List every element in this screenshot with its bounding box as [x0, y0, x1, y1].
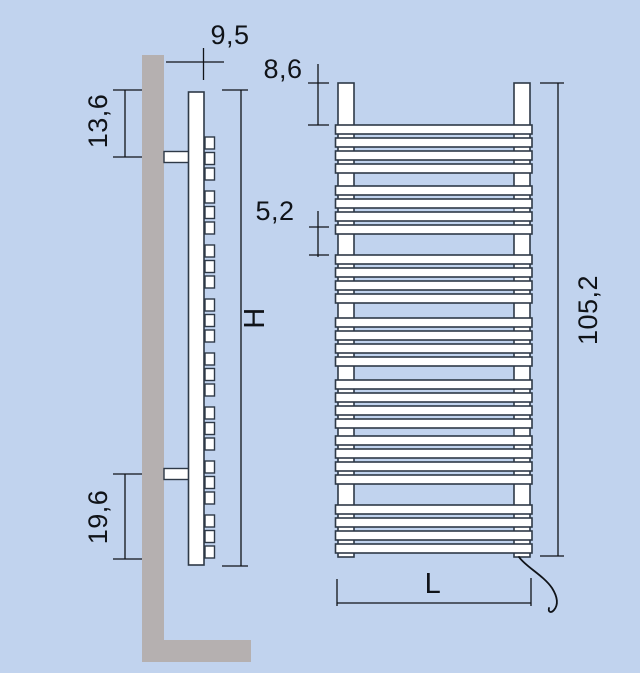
side-tube-section: [205, 477, 215, 489]
side-tube-section: [205, 515, 215, 527]
side-view-tube-sections: [205, 137, 215, 558]
lower-wall-bracket: [164, 469, 189, 480]
front-view-towel-bars: [336, 125, 533, 553]
side-tube-section: [205, 438, 215, 450]
front-towel-bar: [336, 436, 533, 445]
side-view-collector: [189, 92, 205, 565]
front-towel-bar: [336, 151, 533, 160]
front-towel-bar: [336, 462, 533, 471]
label-tube-group-gap: 5,2: [255, 196, 294, 226]
front-towel-bar: [336, 344, 533, 353]
front-towel-bar: [336, 212, 533, 221]
front-towel-bar: [336, 544, 533, 553]
front-towel-bar: [336, 331, 533, 340]
dim-line-overall-height: [540, 83, 564, 556]
label-lower-bracket-offset: 19,6: [83, 490, 113, 545]
front-towel-bar: [336, 419, 533, 428]
label-top-to-first-tube: 8,6: [263, 54, 302, 84]
label-upper-bracket-offset: 13,6: [83, 94, 113, 149]
front-towel-bar: [336, 318, 533, 327]
side-tube-section: [205, 222, 215, 234]
front-towel-bar: [336, 164, 533, 173]
power-cable: [519, 557, 557, 612]
side-tube-section: [205, 261, 215, 273]
dim-line-wall-distance: [166, 48, 224, 80]
front-towel-bar: [336, 518, 533, 527]
side-tube-section: [205, 168, 215, 180]
front-towel-bar: [336, 186, 533, 195]
side-tube-section: [205, 461, 215, 473]
side-tube-section: [205, 315, 215, 327]
side-view: [164, 92, 215, 565]
front-towel-bar: [336, 138, 533, 147]
front-towel-bar: [336, 449, 533, 458]
radiator-technical-drawing: 9,5 13,6 8,6 5,2 H 19,6 105,2 L: [0, 0, 640, 673]
side-tube-section: [205, 299, 215, 311]
front-view: [336, 83, 557, 612]
front-towel-bar: [336, 393, 533, 402]
side-tube-section: [205, 407, 215, 419]
front-towel-bar: [336, 357, 533, 366]
front-towel-bar: [336, 505, 533, 514]
front-towel-bar: [336, 268, 533, 277]
side-tube-section: [205, 330, 215, 342]
front-towel-bar: [336, 225, 533, 234]
side-tube-section: [205, 137, 215, 149]
side-tube-section: [205, 245, 215, 257]
side-tube-section: [205, 492, 215, 504]
front-towel-bar: [336, 199, 533, 208]
front-towel-bar: [336, 125, 533, 134]
dim-line-tube-group-gap: [309, 211, 329, 257]
front-towel-bar: [336, 531, 533, 540]
dim-line-upper-bracket: [113, 90, 142, 157]
label-overall-height: 105,2: [573, 275, 603, 345]
front-towel-bar: [336, 294, 533, 303]
side-tube-section: [205, 546, 215, 558]
side-tube-section: [205, 423, 215, 435]
front-towel-bar: [336, 380, 533, 389]
front-towel-bar: [336, 255, 533, 264]
dim-line-top-to-first-tube: [308, 64, 329, 125]
side-tube-section: [205, 353, 215, 365]
front-towel-bar: [336, 475, 533, 484]
drawing-canvas: 9,5 13,6 8,6 5,2 H 19,6 105,2 L: [0, 0, 640, 673]
front-towel-bar: [336, 406, 533, 415]
side-tube-section: [205, 191, 215, 203]
side-tube-section: [205, 153, 215, 165]
label-width-symbol: L: [425, 568, 442, 600]
upper-wall-bracket: [164, 152, 189, 163]
side-tube-section: [205, 531, 215, 543]
label-wall-distance: 9,5: [210, 20, 249, 50]
front-towel-bar: [336, 281, 533, 290]
side-tube-section: [205, 369, 215, 381]
side-tube-section: [205, 276, 215, 288]
dim-line-lower-bracket: [113, 474, 142, 559]
label-height-symbol: H: [239, 307, 271, 328]
side-tube-section: [205, 384, 215, 396]
side-tube-section: [205, 207, 215, 219]
